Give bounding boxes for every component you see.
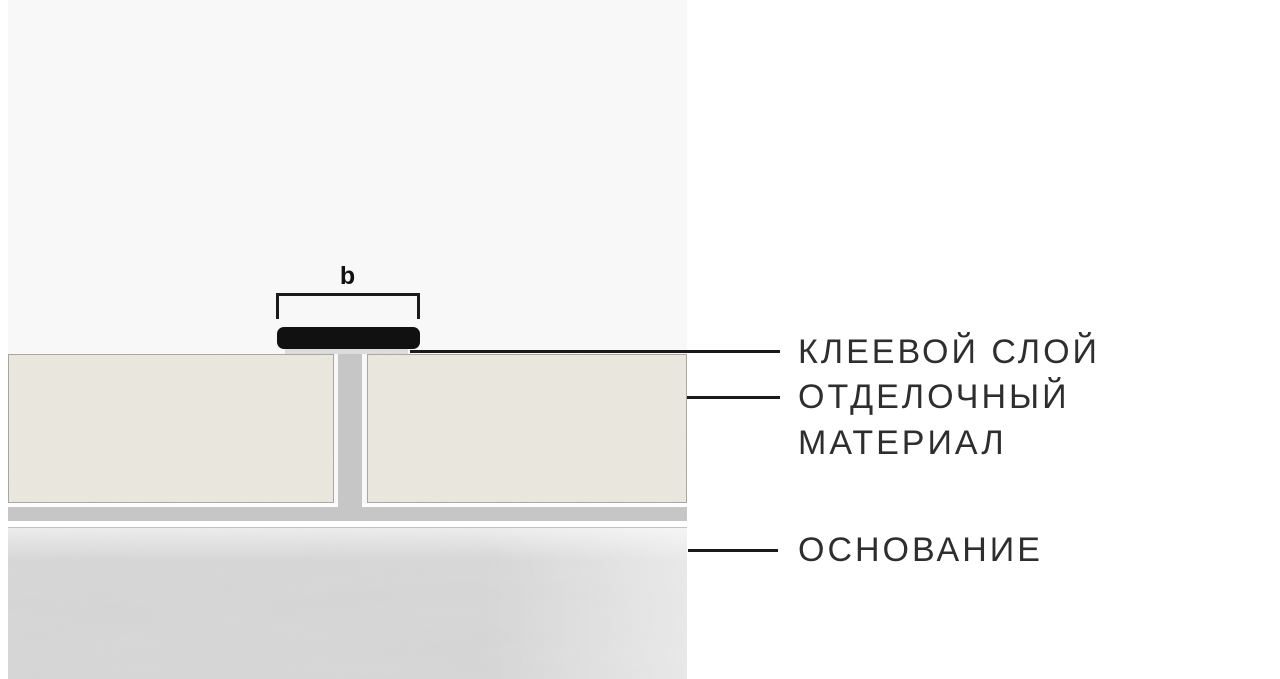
tile-texture [368,355,686,502]
substrate-base [8,527,687,679]
tile-texture [9,355,333,502]
callout-line-substrate [688,549,778,552]
label-adhesive-layer: КЛЕЕВОЙ СЛОЙ [798,329,1100,375]
dimension-bracket-line [276,293,420,296]
screenshot: b КЛЕЕВОЙ СЛОЙ ОТДЕЛОЧНЫЙ МАТЕРИАЛ ОСНОВ… [0,0,1280,679]
profile-joint-stem [338,348,362,521]
label-finishing-material: ОТДЕЛОЧНЫЙ МАТЕРИАЛ [798,374,1070,466]
dimension-label-b: b [276,262,420,291]
cross-section-panel: b [8,0,687,679]
substrate-sheen [8,528,687,679]
label-substrate: ОСНОВАНИЕ [798,527,1043,573]
callout-line-finishing-material [687,396,780,399]
callout-line-adhesive-layer [410,350,780,353]
profile-cap [277,327,420,349]
finishing-material-tile-left [8,354,334,503]
label-finishing-material-line2: МАТЕРИАЛ [798,424,1007,462]
finishing-material-tile-right [367,354,687,503]
label-finishing-material-line1: ОТДЕЛОЧНЫЙ [798,378,1070,416]
dimension-bracket-tick-left [276,293,279,319]
dimension-bracket-tick-right [417,293,420,319]
